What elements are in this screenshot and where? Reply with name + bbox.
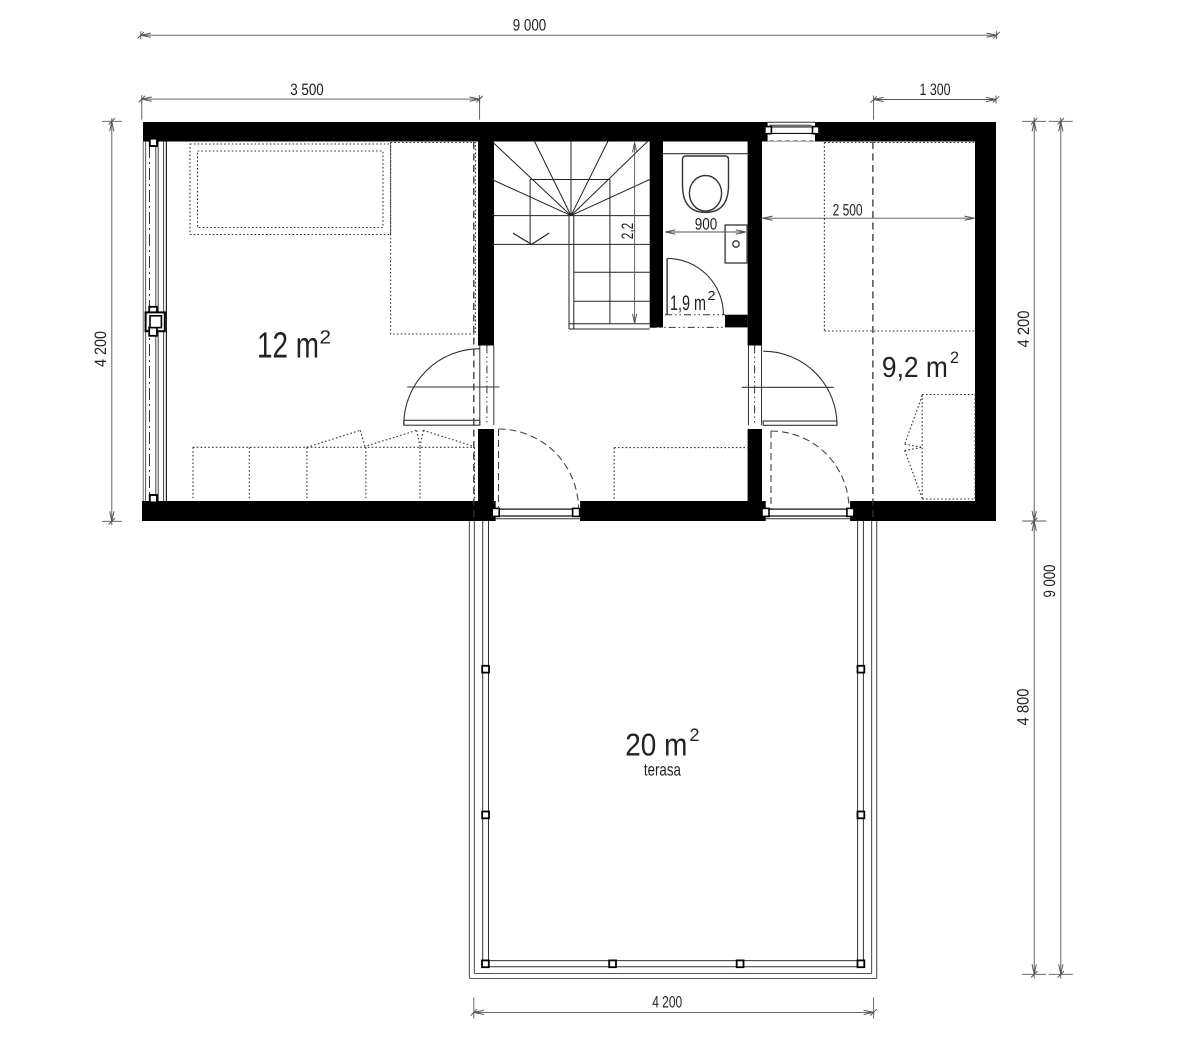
svg-text:3 500: 3 500 bbox=[290, 81, 324, 99]
svg-text:2: 2 bbox=[690, 725, 700, 745]
svg-text:4 800: 4 800 bbox=[1015, 689, 1033, 726]
svg-text:900: 900 bbox=[695, 215, 718, 233]
svg-text:9 000: 9 000 bbox=[1041, 565, 1059, 598]
svg-text:4 200: 4 200 bbox=[652, 994, 682, 1012]
svg-text:1 300: 1 300 bbox=[920, 81, 951, 99]
svg-text:9,2 m: 9,2 m bbox=[882, 352, 948, 384]
svg-text:12 m: 12 m bbox=[257, 325, 319, 366]
svg-text:4 200: 4 200 bbox=[1015, 311, 1033, 348]
svg-text:2: 2 bbox=[708, 288, 716, 303]
svg-text:20 m: 20 m bbox=[625, 727, 687, 763]
svg-text:terasa: terasa bbox=[644, 760, 681, 780]
svg-text:2: 2 bbox=[950, 349, 959, 367]
svg-text:2,2: 2,2 bbox=[619, 223, 637, 240]
svg-text:2 500: 2 500 bbox=[833, 202, 863, 220]
svg-text:2: 2 bbox=[320, 328, 332, 349]
svg-text:4 200: 4 200 bbox=[92, 331, 110, 367]
svg-text:9 000: 9 000 bbox=[513, 17, 547, 35]
svg-text:1,9 m: 1,9 m bbox=[670, 292, 706, 315]
